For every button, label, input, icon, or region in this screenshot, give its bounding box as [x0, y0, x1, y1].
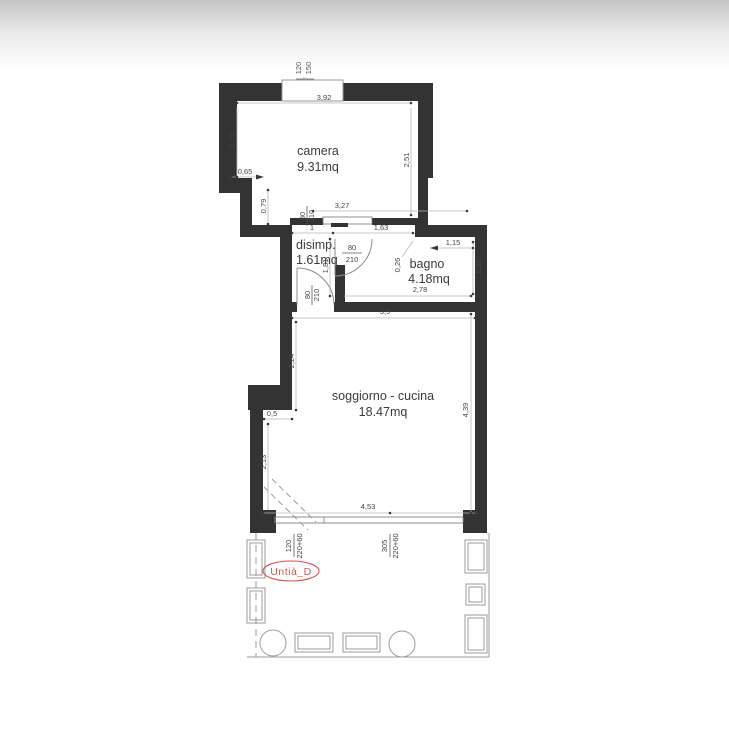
- dim-sogg-left-upper: 2,24: [287, 354, 296, 369]
- floorplan-image: 120 150 3,92 1,72 2,51 0,65 0,79 80 210 …: [0, 0, 729, 746]
- terrace-planter-inner: [346, 636, 377, 649]
- dim-camera-bottom-wall: 3,27: [335, 201, 350, 210]
- dim-arrow-left: [430, 246, 438, 251]
- dim-window2-h: 220+60: [391, 533, 400, 558]
- room-bagno-area: 4.18mq: [408, 272, 450, 286]
- dim-sogg-top: 3,9: [380, 307, 390, 316]
- terrace-planter-inner: [298, 636, 330, 649]
- dim-window2-w: 305: [380, 540, 389, 553]
- dim-lines-path: [231, 77, 476, 513]
- room-bagno-name: bagno: [410, 257, 445, 271]
- terrace-pot: [260, 630, 286, 656]
- window-top: [282, 80, 343, 101]
- pilaster-inner: [468, 543, 484, 570]
- dim-bagno-door-w: 80: [348, 243, 356, 252]
- dim-bagno-bottom: 2,78: [413, 285, 428, 294]
- entry-door-dashed-1: [272, 479, 316, 522]
- leader-stub-026: [402, 241, 413, 257]
- wall-segment: [280, 302, 297, 312]
- wall-segment: [240, 225, 292, 237]
- wall-segment: [219, 178, 252, 193]
- dim-camera-right: 2,51: [402, 153, 411, 168]
- room-soggiorno-area: 18.47mq: [359, 405, 408, 419]
- sliding-door-panel: [323, 217, 372, 224]
- dim-window1-w: 120: [284, 540, 293, 553]
- dim-disimp-door-w: 80: [303, 291, 312, 299]
- dim-sogg-bottom: 4,53: [361, 502, 376, 511]
- room-camera-area: 9.31mq: [297, 160, 339, 174]
- wall-segment: [248, 385, 292, 410]
- floorplan-drawing: 120 150 3,92 1,72 2,51 0,65 0,79 80 210 …: [0, 0, 729, 746]
- dim-sogg-right: 4,39: [461, 403, 470, 418]
- dim-window1-h: 220+60: [295, 533, 304, 558]
- room-soggiorno-name: soggiorno - cucina: [332, 389, 434, 403]
- room-disimpegno-name: disimp.: [296, 238, 336, 252]
- dim-wall-recess: 0,5: [267, 409, 277, 418]
- dim-top-window-h: 150: [304, 62, 313, 75]
- pilaster-inner: [468, 618, 484, 650]
- dim-camera-door-h: 210: [307, 210, 316, 223]
- wall-segment: [475, 237, 487, 518]
- dim-bagno-door-h: 210: [346, 255, 359, 264]
- dim-sogg-left-lower: 2,13: [259, 455, 268, 470]
- dim-camera-top: 3,92: [317, 93, 332, 102]
- unit-stamp-label: Untià_D: [270, 566, 311, 578]
- terrace-pot: [389, 631, 415, 657]
- wall-segment: [240, 193, 252, 227]
- dim-step-v: 0,79: [259, 199, 268, 214]
- dim-bagno-top: 1,15: [446, 238, 461, 247]
- dim-camera-left: 1,72: [228, 133, 237, 148]
- sliding-door-leaf: [331, 223, 348, 227]
- window-band-bottom: [275, 517, 463, 523]
- dim-wall-stub: 0,26: [393, 258, 402, 273]
- dim-arrow-right: [256, 175, 264, 180]
- dim-step-h: 0,65: [238, 167, 253, 176]
- wall-segment: [418, 83, 433, 178]
- wall-segment: [334, 302, 487, 312]
- unit-stamp: Untià_D: [263, 561, 319, 581]
- dim-bagno-right: 1,35: [474, 260, 483, 275]
- room-disimpegno-area: 1.61mq: [296, 253, 338, 267]
- dim-top-window-w: 120: [294, 62, 303, 75]
- room-camera-name: camera: [297, 144, 339, 158]
- dim-disimp-door-h: 210: [312, 289, 321, 302]
- dimension-lines: [231, 77, 476, 557]
- pilaster-inner: [469, 587, 482, 602]
- dim-opening: 1,63: [374, 223, 389, 232]
- dim-camera-door-w: 80: [298, 212, 307, 220]
- dim-disimp-top: 1: [310, 223, 314, 232]
